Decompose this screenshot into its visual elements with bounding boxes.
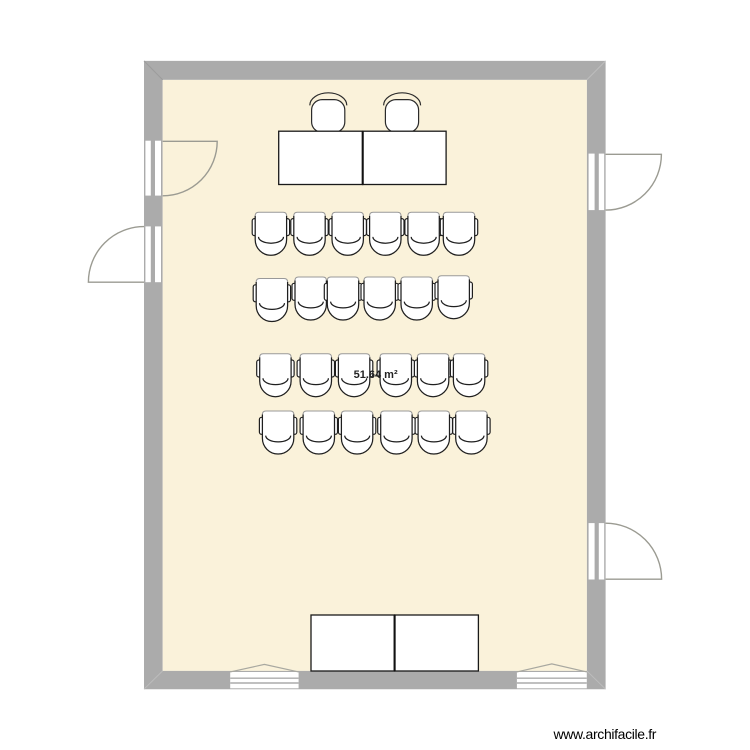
svg-text:www.archifacile.fr: www.archifacile.fr	[553, 726, 657, 742]
svg-text:51.64 m²: 51.64 m²	[354, 369, 398, 381]
